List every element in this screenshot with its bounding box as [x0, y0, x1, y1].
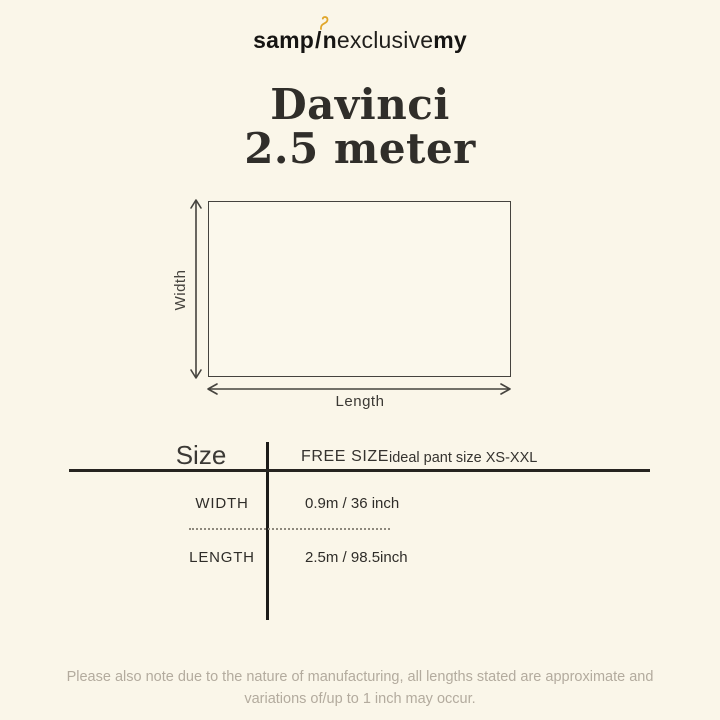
free-size-label: FREE SIZE — [301, 448, 389, 466]
table-header-rule — [69, 469, 650, 472]
table-row-width-value: 0.9m / 36 inch — [305, 495, 399, 512]
table-row-length-value: 2.5m / 98.5inch — [305, 549, 408, 566]
table-row-width-label: WIDTH — [160, 495, 284, 512]
logo-part-exclusive: exclusive — [337, 27, 433, 54]
table-row-separator — [189, 528, 390, 530]
hanger-hook-icon — [317, 15, 331, 30]
fabric-rectangle — [208, 201, 511, 377]
size-table-header: Size — [150, 440, 252, 471]
width-arrow — [188, 198, 204, 380]
product-title-name: Davinci — [0, 83, 720, 127]
manufacturing-disclaimer: Please also note due to the nature of ma… — [0, 666, 720, 710]
product-title-length: 2.5 meter — [0, 127, 720, 171]
length-axis-label: Length — [208, 393, 512, 410]
brand-logo: samp/nexclusivemy — [0, 27, 720, 54]
logo-part-samp: samp — [253, 27, 314, 54]
logo-part-n: n — [323, 27, 337, 54]
logo-slash: / — [314, 27, 323, 54]
ideal-pant-size-label: ideal pant size XS-XXL — [389, 450, 537, 466]
width-axis-label: Width — [172, 267, 190, 313]
table-row-length-label: LENGTH — [160, 549, 284, 566]
logo-part-my: my — [433, 27, 467, 54]
product-title: Davinci 2.5 meter — [0, 83, 720, 171]
disclaimer-line-2: variations of/up to 1 inch may occur. — [0, 688, 720, 710]
disclaimer-line-1: Please also note due to the nature of ma… — [0, 666, 720, 688]
